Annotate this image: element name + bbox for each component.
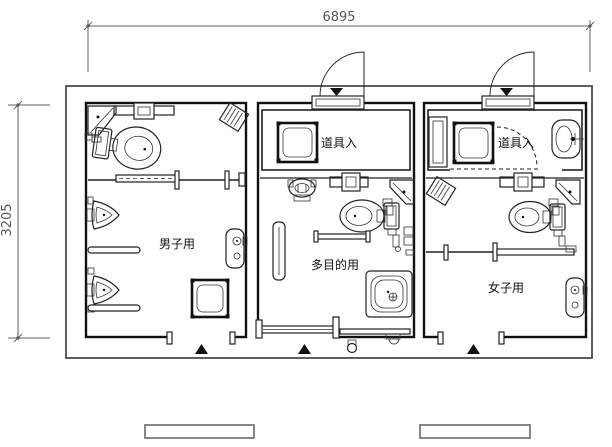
floor-plan-drawing: 道具入 道具入 — [0, 0, 612, 447]
room-label-multipurpose: 多目的用 — [311, 257, 359, 272]
dimension-left: 3205 — [0, 101, 50, 342]
entrance-door — [482, 52, 534, 109]
door-jamb — [230, 332, 235, 344]
dimension-top: 6895 — [84, 10, 594, 72]
sink-icon — [566, 278, 587, 317]
storage-label-right: 道具入 — [498, 136, 534, 150]
floor-plan-canvas: 道具入 道具入 — [0, 0, 612, 447]
door-jamb — [499, 332, 504, 344]
dimension-height-label: 3205 — [0, 203, 15, 236]
entrance-mat — [420, 425, 530, 438]
wash-basin-icon — [366, 271, 412, 317]
folding-bench — [273, 222, 285, 280]
mop-basin-icon — [191, 279, 230, 319]
dimension-width-label: 6895 — [322, 10, 355, 25]
entrance-mat — [145, 425, 254, 438]
entrance-mats — [145, 425, 530, 438]
room-label-womens: 女子用 — [488, 280, 524, 295]
mop-basin-icon — [453, 122, 495, 164]
urinal-screen — [88, 305, 140, 311]
room-label-mens: 男子用 — [159, 237, 195, 251]
mop-basin-icon — [277, 122, 319, 163]
door-jamb — [438, 332, 443, 344]
storage-label-middle: 道具入 — [321, 136, 357, 150]
sink-icon — [226, 229, 247, 268]
entrance-door — [312, 52, 364, 109]
door-jamb — [167, 332, 172, 344]
urinal-screen — [88, 247, 140, 253]
